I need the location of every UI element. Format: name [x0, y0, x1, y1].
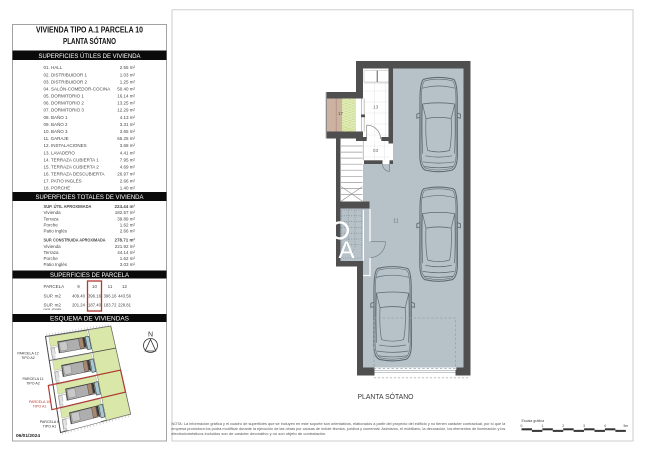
svg-text:17. PATIO INGLÉS: 17. PATIO INGLÉS	[44, 178, 82, 184]
svg-text:Vivienda: Vivienda	[44, 210, 62, 215]
svg-text:SUP. CONSTRUIDA APROXIMADA: SUP. CONSTRUIDA APROXIMADA	[44, 238, 107, 243]
svg-text:Vivienda: Vivienda	[44, 244, 62, 249]
svg-text:Escala gráfica: Escala gráfica	[522, 419, 545, 423]
svg-text:TIPO A1: TIPO A1	[33, 405, 47, 409]
svg-text:12: 12	[122, 284, 128, 289]
svg-text:13. LAVADERO: 13. LAVADERO	[44, 150, 76, 155]
svg-text:3: 3	[583, 424, 585, 428]
svg-text:16. TERRAZA DESCUBIERTA: 16. TERRAZA DESCUBIERTA	[44, 172, 105, 177]
svg-text:2.55 m²: 2.55 m²	[120, 65, 136, 70]
svg-text:PARCELA 11: PARCELA 11	[22, 377, 43, 381]
svg-text:SUP. m2: SUP. m2	[44, 294, 62, 299]
svg-text:26.97 m²: 26.97 m²	[117, 172, 135, 177]
svg-text:50.40 m²: 50.40 m²	[117, 87, 135, 92]
svg-text:10: 10	[92, 284, 98, 289]
svg-text:10. BAÑO 3: 10. BAÑO 3	[44, 128, 69, 134]
svg-text:2: 2	[562, 424, 564, 428]
svg-text:17: 17	[338, 111, 343, 116]
svg-text:3.65 m²: 3.65 m²	[120, 129, 136, 134]
svg-text:01. HALL: 01. HALL	[44, 65, 63, 70]
svg-text:201.24: 201.24	[72, 303, 85, 308]
svg-text:03. DISTRIBUIDOR 2: 03. DISTRIBUIDOR 2	[44, 79, 88, 84]
svg-text:TIPO A2: TIPO A2	[26, 382, 40, 386]
svg-text:4.69 m²: 4.69 m²	[120, 165, 136, 170]
svg-text:NOTA: La información gráfica y: NOTA: La información gráfica y el cuadro…	[171, 422, 505, 426]
svg-text:PARCELA 12: PARCELA 12	[17, 352, 38, 356]
svg-text:Patio Inglés: Patio Inglés	[44, 229, 68, 234]
svg-text:04. SALÓN-COMEDOR-COCINA: 04. SALÓN-COMEDOR-COCINA	[44, 86, 111, 92]
svg-text:08. BAÑO 1: 08. BAÑO 1	[44, 114, 69, 120]
svg-text:4.13 m²: 4.13 m²	[120, 115, 136, 120]
svg-text:0: 0	[521, 424, 523, 428]
svg-text:278.71 m²: 278.71 m²	[114, 238, 135, 243]
svg-text:12.29 m²: 12.29 m²	[117, 108, 135, 113]
svg-text:SUP. ÚTIL APROXIMADA: SUP. ÚTIL APROXIMADA	[44, 203, 93, 209]
svg-text:PLANTA SÓTANO: PLANTA SÓTANO	[63, 37, 116, 46]
svg-text:PARCELA 9: PARCELA 9	[40, 420, 59, 424]
svg-text:396.16: 396.16	[104, 294, 117, 299]
svg-text:16.14 m²: 16.14 m²	[117, 94, 135, 99]
svg-text:409.40: 409.40	[72, 294, 85, 299]
svg-text:1: 1	[541, 424, 543, 428]
svg-text:11: 11	[108, 284, 113, 289]
svg-text:SUPERFICIES ÚTILES DE VIVIENDA: SUPERFICIES ÚTILES DE VIVIENDA	[39, 51, 141, 60]
svg-text:3.31 m²: 3.31 m²	[120, 122, 136, 127]
svg-text:3.68 m²: 3.68 m²	[120, 143, 136, 148]
svg-text:187.40: 187.40	[88, 303, 101, 308]
svg-text:07. DORMITORIO 3: 07. DORMITORIO 3	[44, 108, 85, 113]
svg-text:14. TERRAZA CUBIERTA 1: 14. TERRAZA CUBIERTA 1	[44, 157, 100, 162]
svg-text:2.66 m²: 2.66 m²	[120, 179, 136, 184]
svg-text:06/01/2024: 06/01/2024	[16, 433, 40, 439]
svg-text:Porche: Porche	[44, 256, 59, 261]
svg-text:182.57 m²: 182.57 m²	[115, 210, 136, 215]
svg-text:44.14 m²: 44.14 m²	[117, 250, 135, 255]
svg-text:SUPERFICIES DE PARCELA: SUPERFICIES DE PARCELA	[50, 272, 129, 279]
svg-text:4.41 m²: 4.41 m²	[120, 150, 136, 155]
svg-text:TIPO A2: TIPO A2	[21, 356, 35, 360]
svg-text:VIVIENDA TIPO A.1 PARCELA 10: VIVIENDA TIPO A.1 PARCELA 10	[36, 26, 144, 35]
svg-text:Terraza: Terraza	[44, 250, 60, 255]
svg-text:ESQUEMA DE VIVIENDAS: ESQUEMA DE VIVIENDAS	[50, 316, 129, 323]
svg-text:TIPO A1: TIPO A1	[43, 425, 57, 429]
svg-text:13.25 m²: 13.25 m²	[117, 101, 135, 106]
svg-text:empresa promotora los podrá m: empresa promotora los podrá modificar du…	[171, 427, 505, 431]
svg-text:224.44 m²: 224.44 m²	[114, 204, 135, 209]
svg-text:02. DISTRIBUIDOR 1: 02. DISTRIBUIDOR 1	[44, 72, 88, 77]
svg-text:1.40 m²: 1.40 m²	[120, 186, 136, 191]
svg-text:11: 11	[393, 218, 398, 224]
svg-text:Porche: Porche	[44, 223, 59, 228]
svg-text:13: 13	[373, 104, 379, 110]
svg-text:1.25 m²: 1.25 m²	[120, 79, 136, 84]
svg-text:Terraza: Terraza	[44, 216, 60, 221]
svg-text:5m: 5m	[623, 424, 628, 428]
svg-text:15. TERRAZA CUBIERTA 2: 15. TERRAZA CUBIERTA 2	[44, 165, 100, 170]
svg-text:SUPERFICIES TOTALES DE VIVIEND: SUPERFICIES TOTALES DE VIVIENDA	[36, 194, 144, 201]
svg-text:183.72: 183.72	[104, 303, 117, 308]
svg-text:1.03 m²: 1.03 m²	[120, 72, 136, 77]
svg-text:18. PORCHE: 18. PORCHE	[44, 186, 71, 191]
svg-text:05. DORMITORIO 1: 05. DORMITORIO 1	[44, 94, 85, 99]
svg-text:Patio Inglés: Patio Inglés	[44, 262, 68, 267]
svg-text:39.89 m²: 39.89 m²	[117, 216, 135, 221]
svg-text:N: N	[148, 332, 153, 339]
svg-text:1.62 m²: 1.62 m²	[120, 256, 136, 261]
svg-text:65.25 m²: 65.25 m²	[117, 136, 135, 141]
svg-text:1.62 m²: 1.62 m²	[120, 223, 136, 228]
svg-text:221.92 m²: 221.92 m²	[115, 244, 136, 249]
svg-text:A: A	[338, 237, 354, 264]
svg-text:11. GARAJE: 11. GARAJE	[44, 136, 69, 141]
svg-text:09. BAÑO 2: 09. BAÑO 2	[44, 121, 69, 127]
svg-text:PARCELA: PARCELA	[44, 284, 65, 289]
svg-text:443.56: 443.56	[118, 294, 131, 299]
svg-text:06. DORMITORIO 2: 06. DORMITORIO 2	[44, 101, 85, 106]
svg-text:electrodomésticos incluidos so: electrodomésticos incluidos son de carác…	[171, 432, 326, 436]
svg-text:3.03 m²: 3.03 m²	[120, 262, 136, 267]
svg-text:PLANTA SÓTANO: PLANTA SÓTANO	[358, 392, 414, 401]
svg-text:228.81: 228.81	[118, 303, 131, 308]
svg-text:03: 03	[373, 148, 379, 154]
svg-text:const. privada: const. privada	[44, 307, 62, 311]
svg-text:7.95 m²: 7.95 m²	[120, 157, 136, 162]
svg-text:PARCELA 10: PARCELA 10	[29, 400, 50, 404]
svg-text:2.66 m²: 2.66 m²	[120, 229, 136, 234]
svg-text:4: 4	[604, 424, 606, 428]
svg-text:396.16: 396.16	[88, 294, 101, 299]
svg-text:12. INSTALACIONES: 12. INSTALACIONES	[44, 143, 87, 148]
